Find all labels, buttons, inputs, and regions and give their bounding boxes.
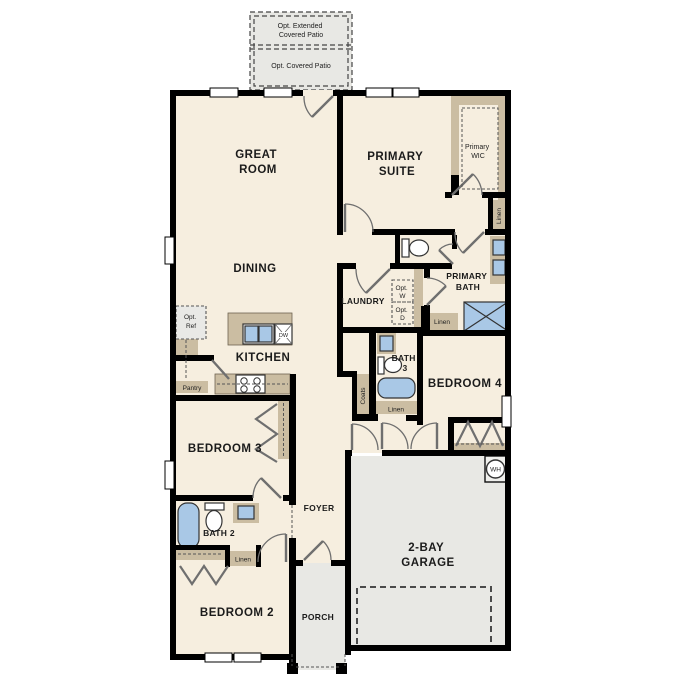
label-linen-primary: Linen bbox=[434, 319, 450, 326]
optional-patio: Opt. Extended Covered Patio Opt. Covered… bbox=[250, 12, 352, 90]
floor-plan: Opt. Extended Covered Patio Opt. Covered… bbox=[0, 0, 687, 687]
svg-text:DW: DW bbox=[279, 333, 289, 339]
label-bedroom2: BEDROOM 2 bbox=[200, 607, 274, 619]
sink-icon-bath3 bbox=[380, 336, 393, 351]
label-linen-hall: Linen bbox=[235, 557, 251, 564]
sink-icon-primary-2 bbox=[493, 260, 505, 275]
label-bath2: BATH 2 bbox=[203, 528, 235, 538]
label-linen-bath3: Linen bbox=[388, 407, 404, 414]
toilet-icon-primary bbox=[402, 239, 429, 257]
window-primary-2 bbox=[393, 88, 419, 97]
sink-icon-bath2 bbox=[238, 506, 254, 519]
stove-icon bbox=[236, 375, 265, 393]
svg-text:WH: WH bbox=[490, 467, 501, 474]
label-coats: Coats bbox=[360, 387, 367, 405]
water-heater-icon: WH bbox=[485, 456, 506, 482]
shower-icon-primary bbox=[464, 302, 508, 331]
label-covered-patio: Opt. Covered Patio bbox=[271, 63, 331, 70]
window-bedroom3 bbox=[165, 461, 174, 489]
label-bedroom4: BEDROOM 4 bbox=[428, 378, 502, 390]
patio-door-gap bbox=[303, 90, 333, 96]
label-foyer: FOYER bbox=[304, 503, 335, 513]
window-bedroom2-1 bbox=[205, 653, 232, 662]
wic-wall-top bbox=[451, 96, 506, 105]
window-primary-1 bbox=[366, 88, 392, 97]
label-dining: DINING bbox=[233, 263, 276, 275]
window-bedroom4 bbox=[502, 396, 511, 427]
window-bedroom2-2 bbox=[234, 653, 261, 662]
label-laundry: LAUNDRY bbox=[341, 296, 384, 306]
island-sink-icon bbox=[243, 324, 274, 344]
dishwasher-icon: DW bbox=[275, 324, 292, 344]
window-great-room-2 bbox=[264, 88, 292, 97]
label-pantry: Pantry bbox=[183, 385, 203, 392]
label-porch: PORCH bbox=[302, 612, 334, 622]
window-dining bbox=[165, 237, 174, 264]
label-bedroom3: BEDROOM 3 bbox=[188, 443, 262, 455]
window-great-room-1 bbox=[210, 88, 238, 97]
bathtub-icon-bath2 bbox=[178, 503, 199, 548]
label-kitchen: KITCHEN bbox=[236, 352, 291, 364]
wic-wall-left bbox=[451, 103, 459, 175]
bathtub-icon-bath3 bbox=[378, 378, 415, 398]
label-linen-right: Linen bbox=[496, 208, 503, 224]
sink-icon-primary-1 bbox=[493, 240, 505, 255]
